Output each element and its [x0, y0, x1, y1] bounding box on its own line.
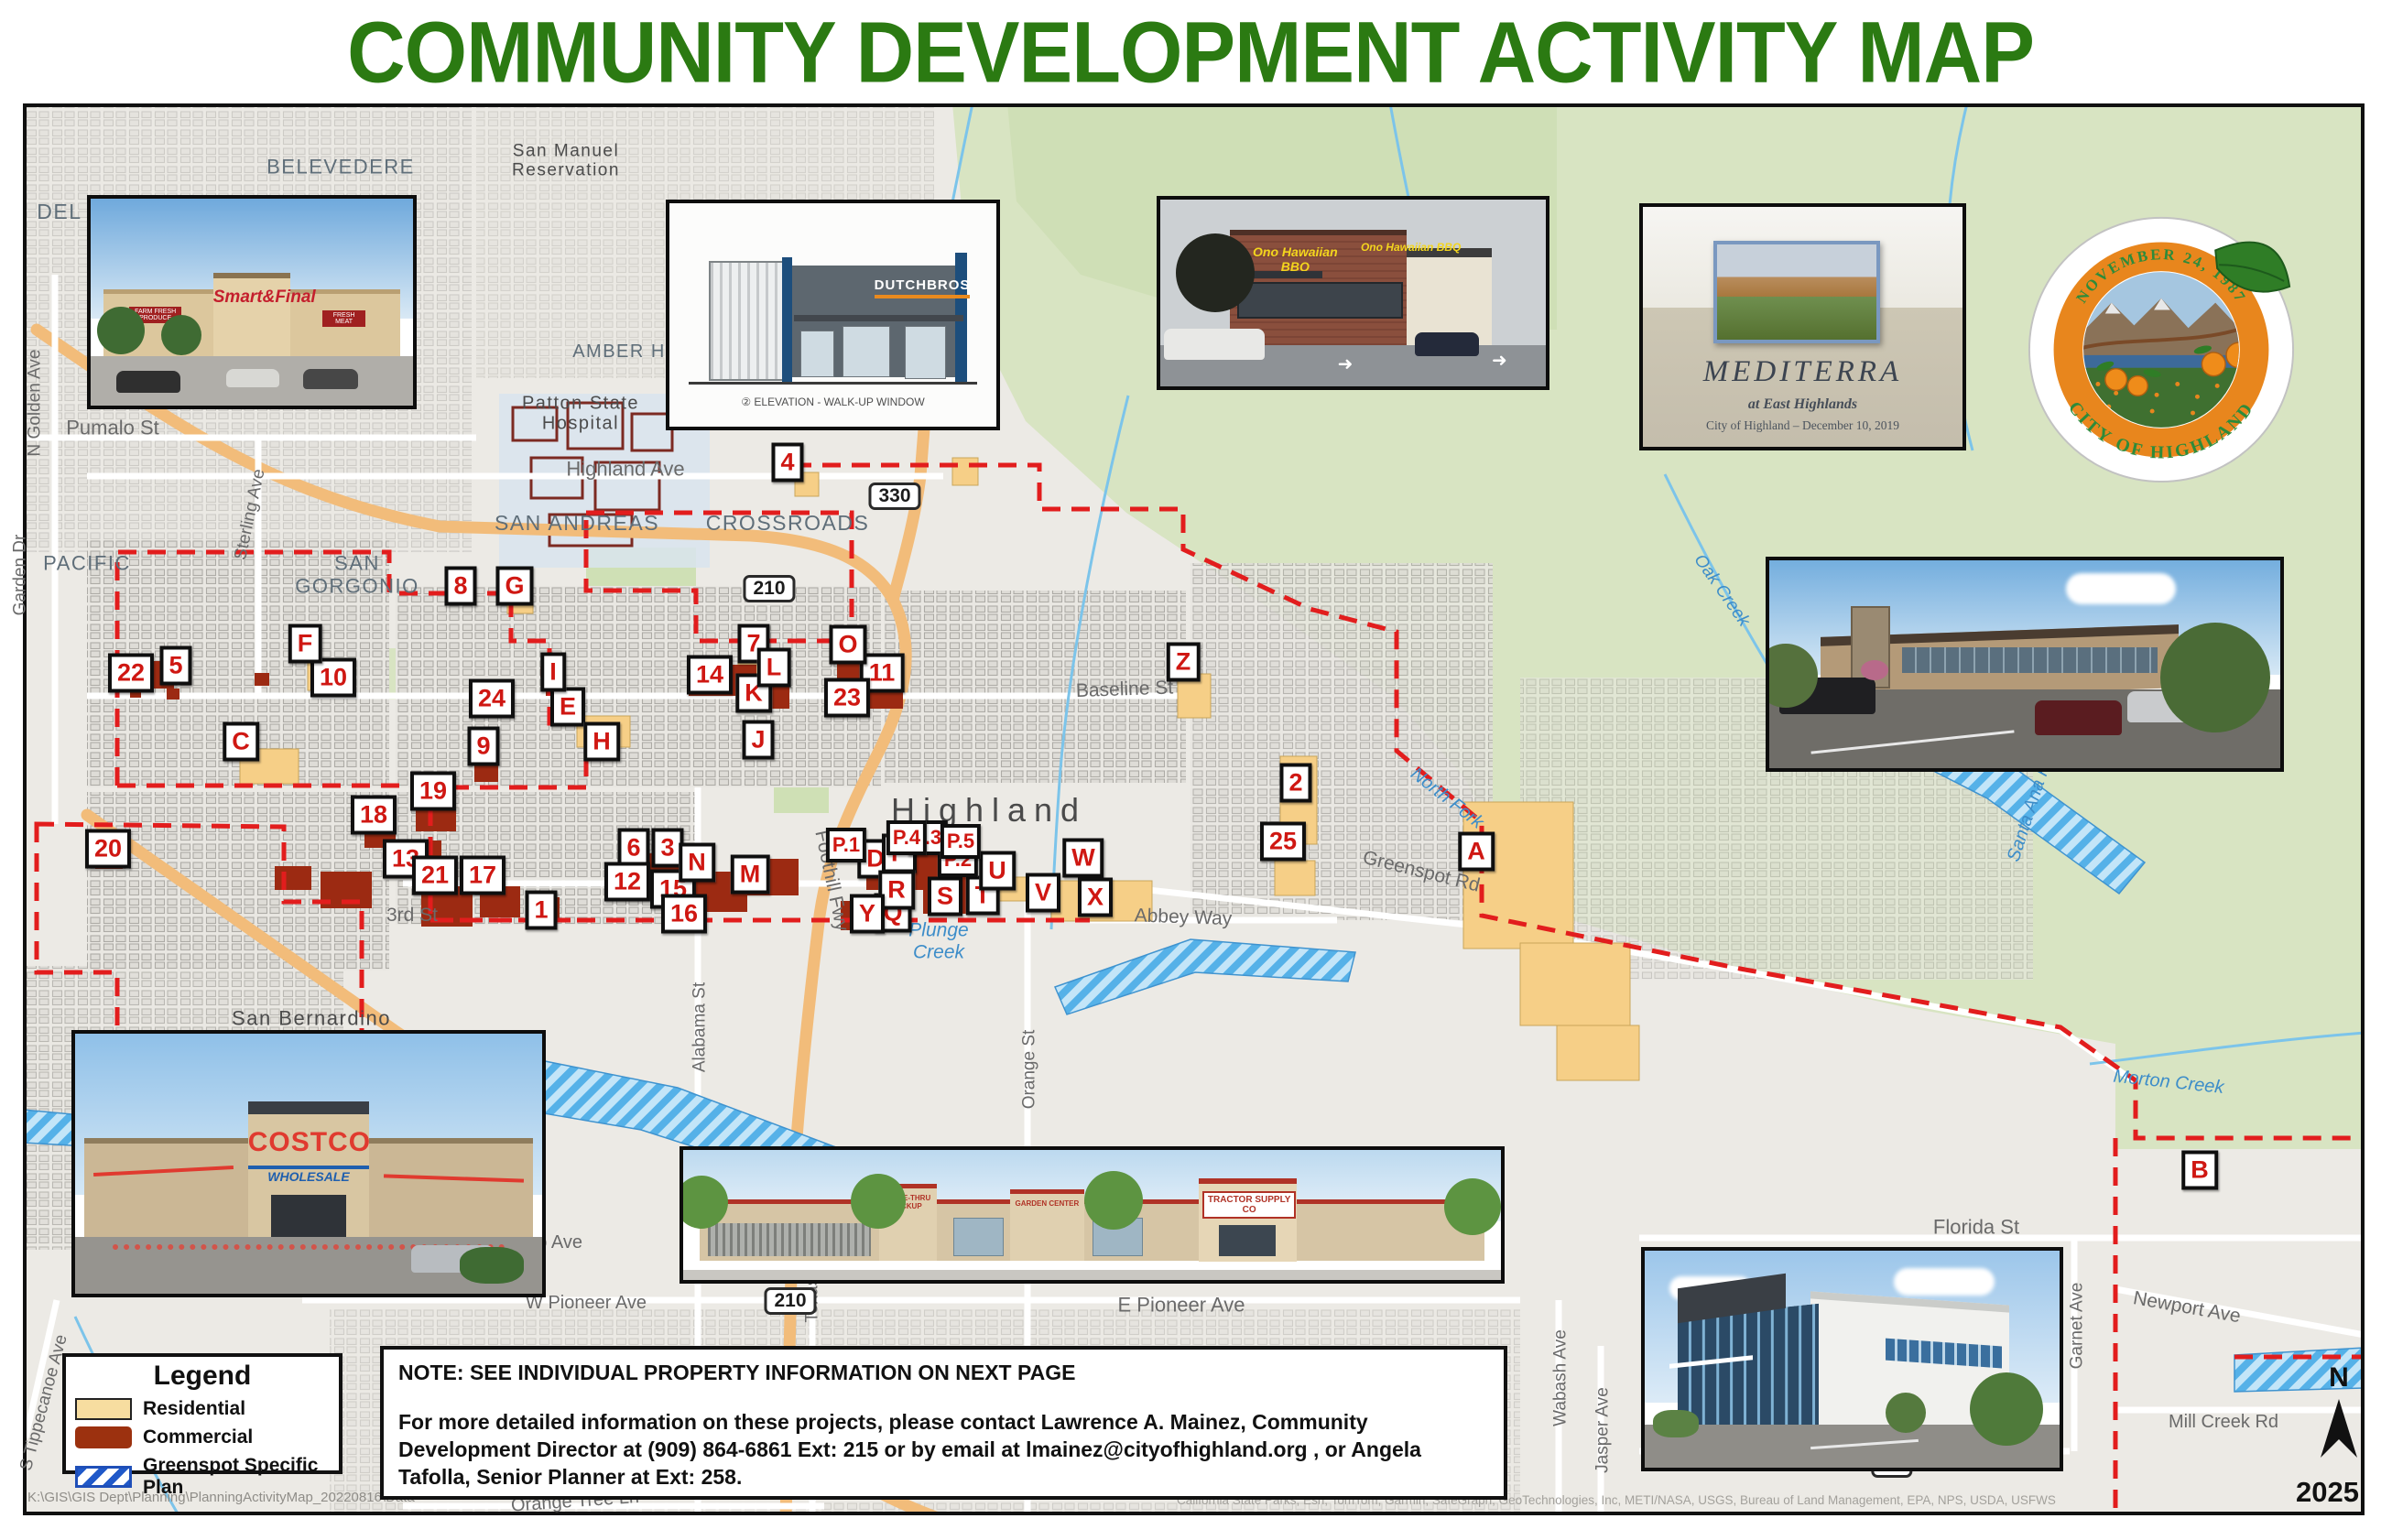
map-marker-A: A [1458, 832, 1495, 872]
note-headline: NOTE: SEE INDIVIDUAL PROPERTY INFORMATIO… [398, 1361, 1489, 1385]
map-marker-22: 22 [108, 654, 154, 693]
map-marker-H: H [583, 722, 620, 762]
hatch-swatch [75, 1466, 132, 1488]
map-marker-Y: Y [850, 895, 885, 934]
map-marker-17: 17 [460, 856, 506, 895]
commercial-swatch [75, 1426, 132, 1448]
legend-item-hatch: Greenspot Specific Plan [75, 1455, 330, 1499]
map-marker-12: 12 [604, 862, 650, 902]
map-marker-P.1: P.1 [826, 828, 866, 862]
map-marker-I: I [540, 653, 566, 692]
map-marker-10: 10 [310, 658, 356, 698]
map-marker-G: G [495, 567, 533, 606]
map-marker-L: L [757, 648, 791, 688]
map-marker-C: C [223, 722, 259, 762]
map-marker-W: W [1062, 839, 1104, 878]
map-marker-E: E [550, 688, 585, 727]
markers-layer: 1234567891011121314151617181920212223242… [0, 0, 2381, 1540]
map-marker-X: X [1078, 878, 1113, 917]
map-marker-21: 21 [412, 856, 458, 895]
map-marker-P.5: P.5 [940, 824, 981, 859]
map-marker-M: M [731, 855, 770, 895]
note-contact-text: For more detailed information on these p… [398, 1409, 1489, 1491]
map-marker-P.4: P.4 [886, 820, 927, 855]
legend-item-commercial: Commercial [75, 1426, 330, 1448]
map-marker-Z: Z [1167, 643, 1201, 682]
legend-title: Legend [75, 1361, 330, 1392]
map-marker-2: 2 [1279, 764, 1311, 803]
map-marker-N: N [679, 843, 715, 883]
map-marker-4: 4 [771, 443, 803, 483]
residential-swatch [75, 1398, 132, 1420]
map-marker-F: F [288, 624, 322, 664]
legend: Legend ResidentialCommercialGreenspot Sp… [62, 1353, 342, 1474]
map-marker-23: 23 [824, 678, 870, 718]
map-marker-24: 24 [469, 679, 515, 719]
map-year: 2025 [2296, 1476, 2359, 1509]
map-marker-19: 19 [410, 772, 456, 811]
north-arrow-icon [2313, 1394, 2365, 1463]
map-marker-V: V [1026, 873, 1060, 913]
legend-item-label: Residential [143, 1398, 245, 1420]
map-marker-J: J [742, 721, 774, 760]
map-marker-8: 8 [444, 567, 476, 606]
legend-item-label: Greenspot Specific Plan [143, 1455, 330, 1499]
legend-item-label: Commercial [143, 1426, 253, 1448]
map-marker-14: 14 [687, 656, 733, 695]
map-marker-1: 1 [525, 891, 557, 930]
map-marker-O: O [829, 625, 866, 665]
north-label: N [2313, 1362, 2365, 1394]
map-marker-25: 25 [1260, 822, 1306, 862]
legend-item-residential: Residential [75, 1398, 330, 1420]
map-marker-S: S [928, 877, 962, 916]
map-marker-B: B [2181, 1151, 2218, 1190]
map-marker-18: 18 [351, 796, 397, 835]
legend-items: ResidentialCommercialGreenspot Specific … [75, 1398, 330, 1499]
map-marker-5: 5 [159, 646, 191, 686]
north-arrow: N [2313, 1362, 2365, 1468]
map-marker-9: 9 [467, 727, 499, 766]
map-marker-16: 16 [661, 895, 707, 934]
note-box: NOTE: SEE INDIVIDUAL PROPERTY INFORMATIO… [380, 1346, 1507, 1500]
community-development-activity-map-page: COMMUNITY DEVELOPMENT ACTIVITY MAP [0, 0, 2381, 1540]
map-marker-U: U [979, 851, 1016, 891]
map-marker-20: 20 [85, 830, 131, 869]
